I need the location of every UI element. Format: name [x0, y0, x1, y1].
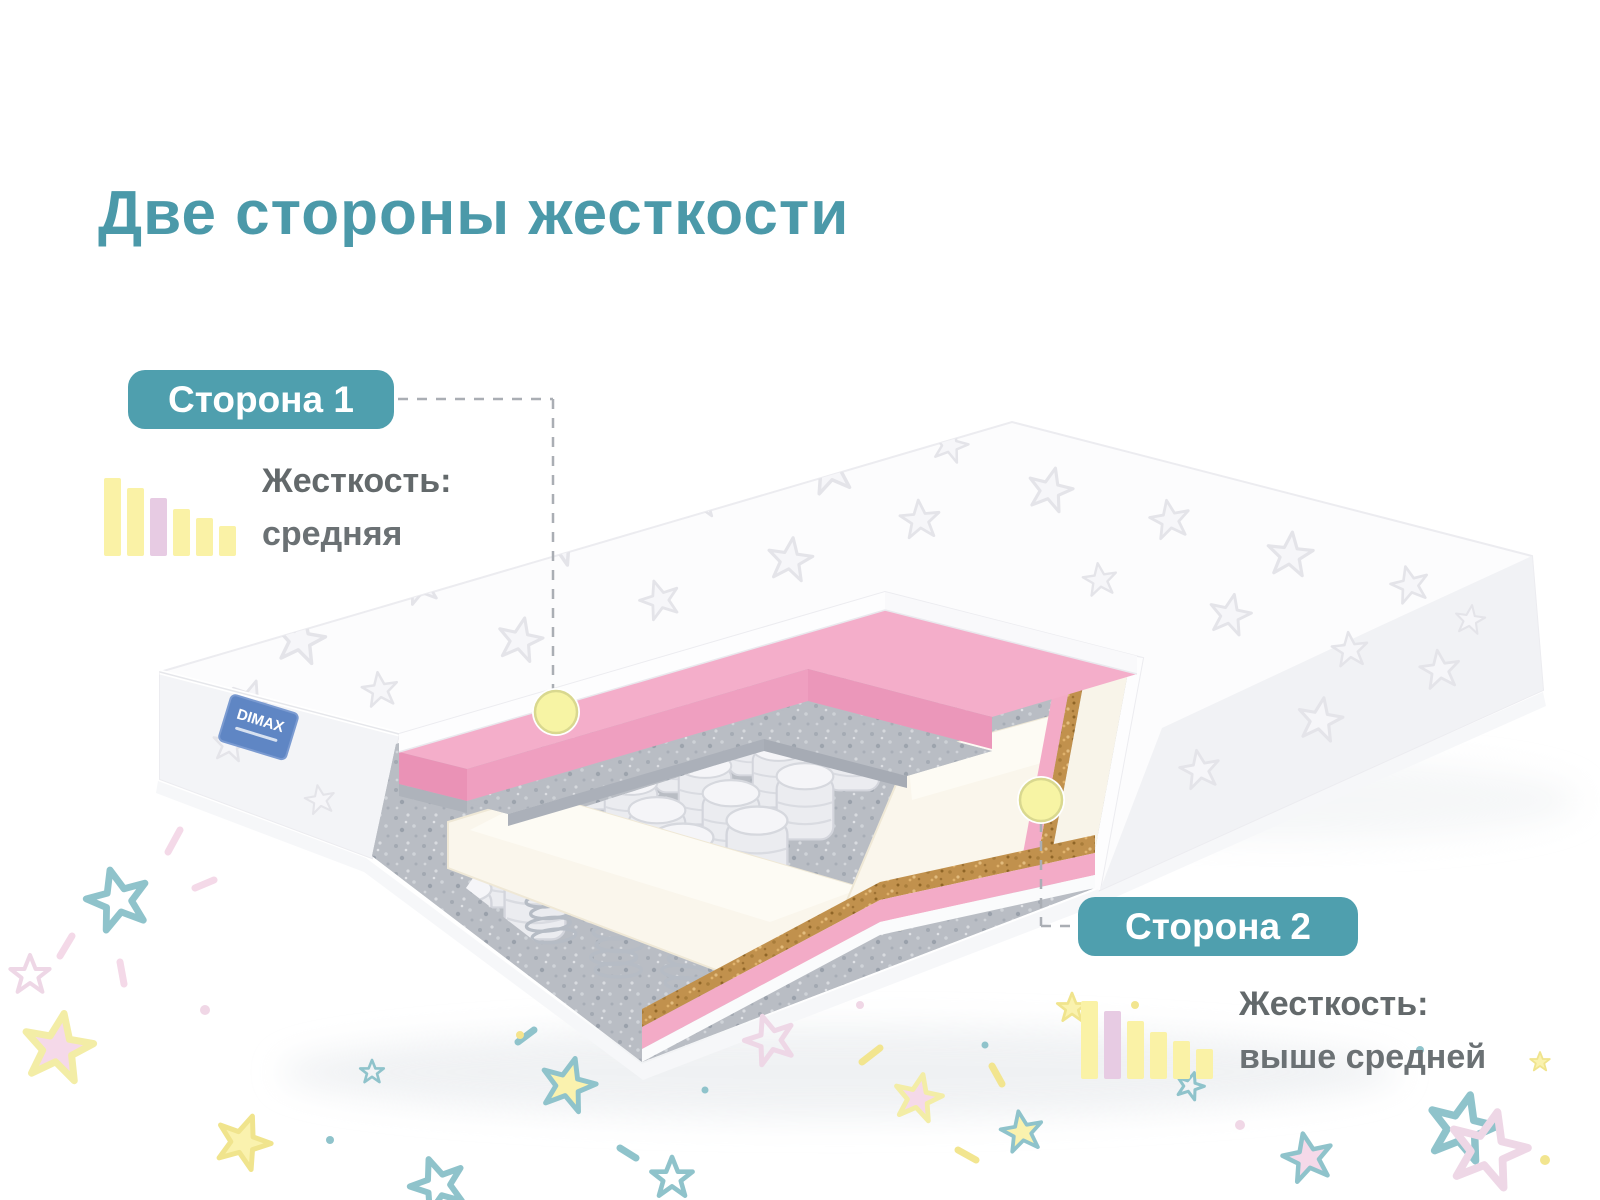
- side1-firmness-label: Жесткость:: [262, 462, 451, 501]
- firmness-bar: [104, 478, 121, 556]
- side2-firmness-block: Жесткость: выше средней: [1081, 985, 1486, 1079]
- firmness-bar: [1173, 1041, 1190, 1079]
- side1-firmness-bars: [104, 468, 236, 556]
- firmness-bar: [1081, 1001, 1098, 1079]
- firmness-bar: [150, 498, 167, 556]
- firmness-bar: [196, 518, 213, 556]
- side1-badge: Сторона 1: [128, 370, 394, 429]
- side1-firmness-block: Жесткость: средняя: [104, 462, 451, 556]
- side2-firmness-bars: [1081, 991, 1213, 1079]
- firmness-bar: [173, 509, 190, 556]
- firmness-bar: [1150, 1032, 1167, 1079]
- side2-badge: Сторона 2: [1078, 897, 1358, 956]
- firmness-bar: [1196, 1049, 1213, 1079]
- side2-firmness-label: Жесткость:: [1239, 985, 1486, 1024]
- side1-firmness-value: средняя: [262, 515, 451, 554]
- firmness-bar: [1127, 1021, 1144, 1079]
- side2-marker-dot: [1017, 776, 1065, 824]
- firmness-bar: [219, 526, 236, 556]
- side2-firmness-value: выше средней: [1239, 1038, 1486, 1077]
- page-title: Две стороны жесткости: [98, 178, 849, 249]
- infographic-canvas: DIMAX: [0, 0, 1600, 1200]
- firmness-bar: [1104, 1011, 1121, 1079]
- side1-marker-dot: [532, 688, 580, 736]
- firmness-bar: [127, 488, 144, 556]
